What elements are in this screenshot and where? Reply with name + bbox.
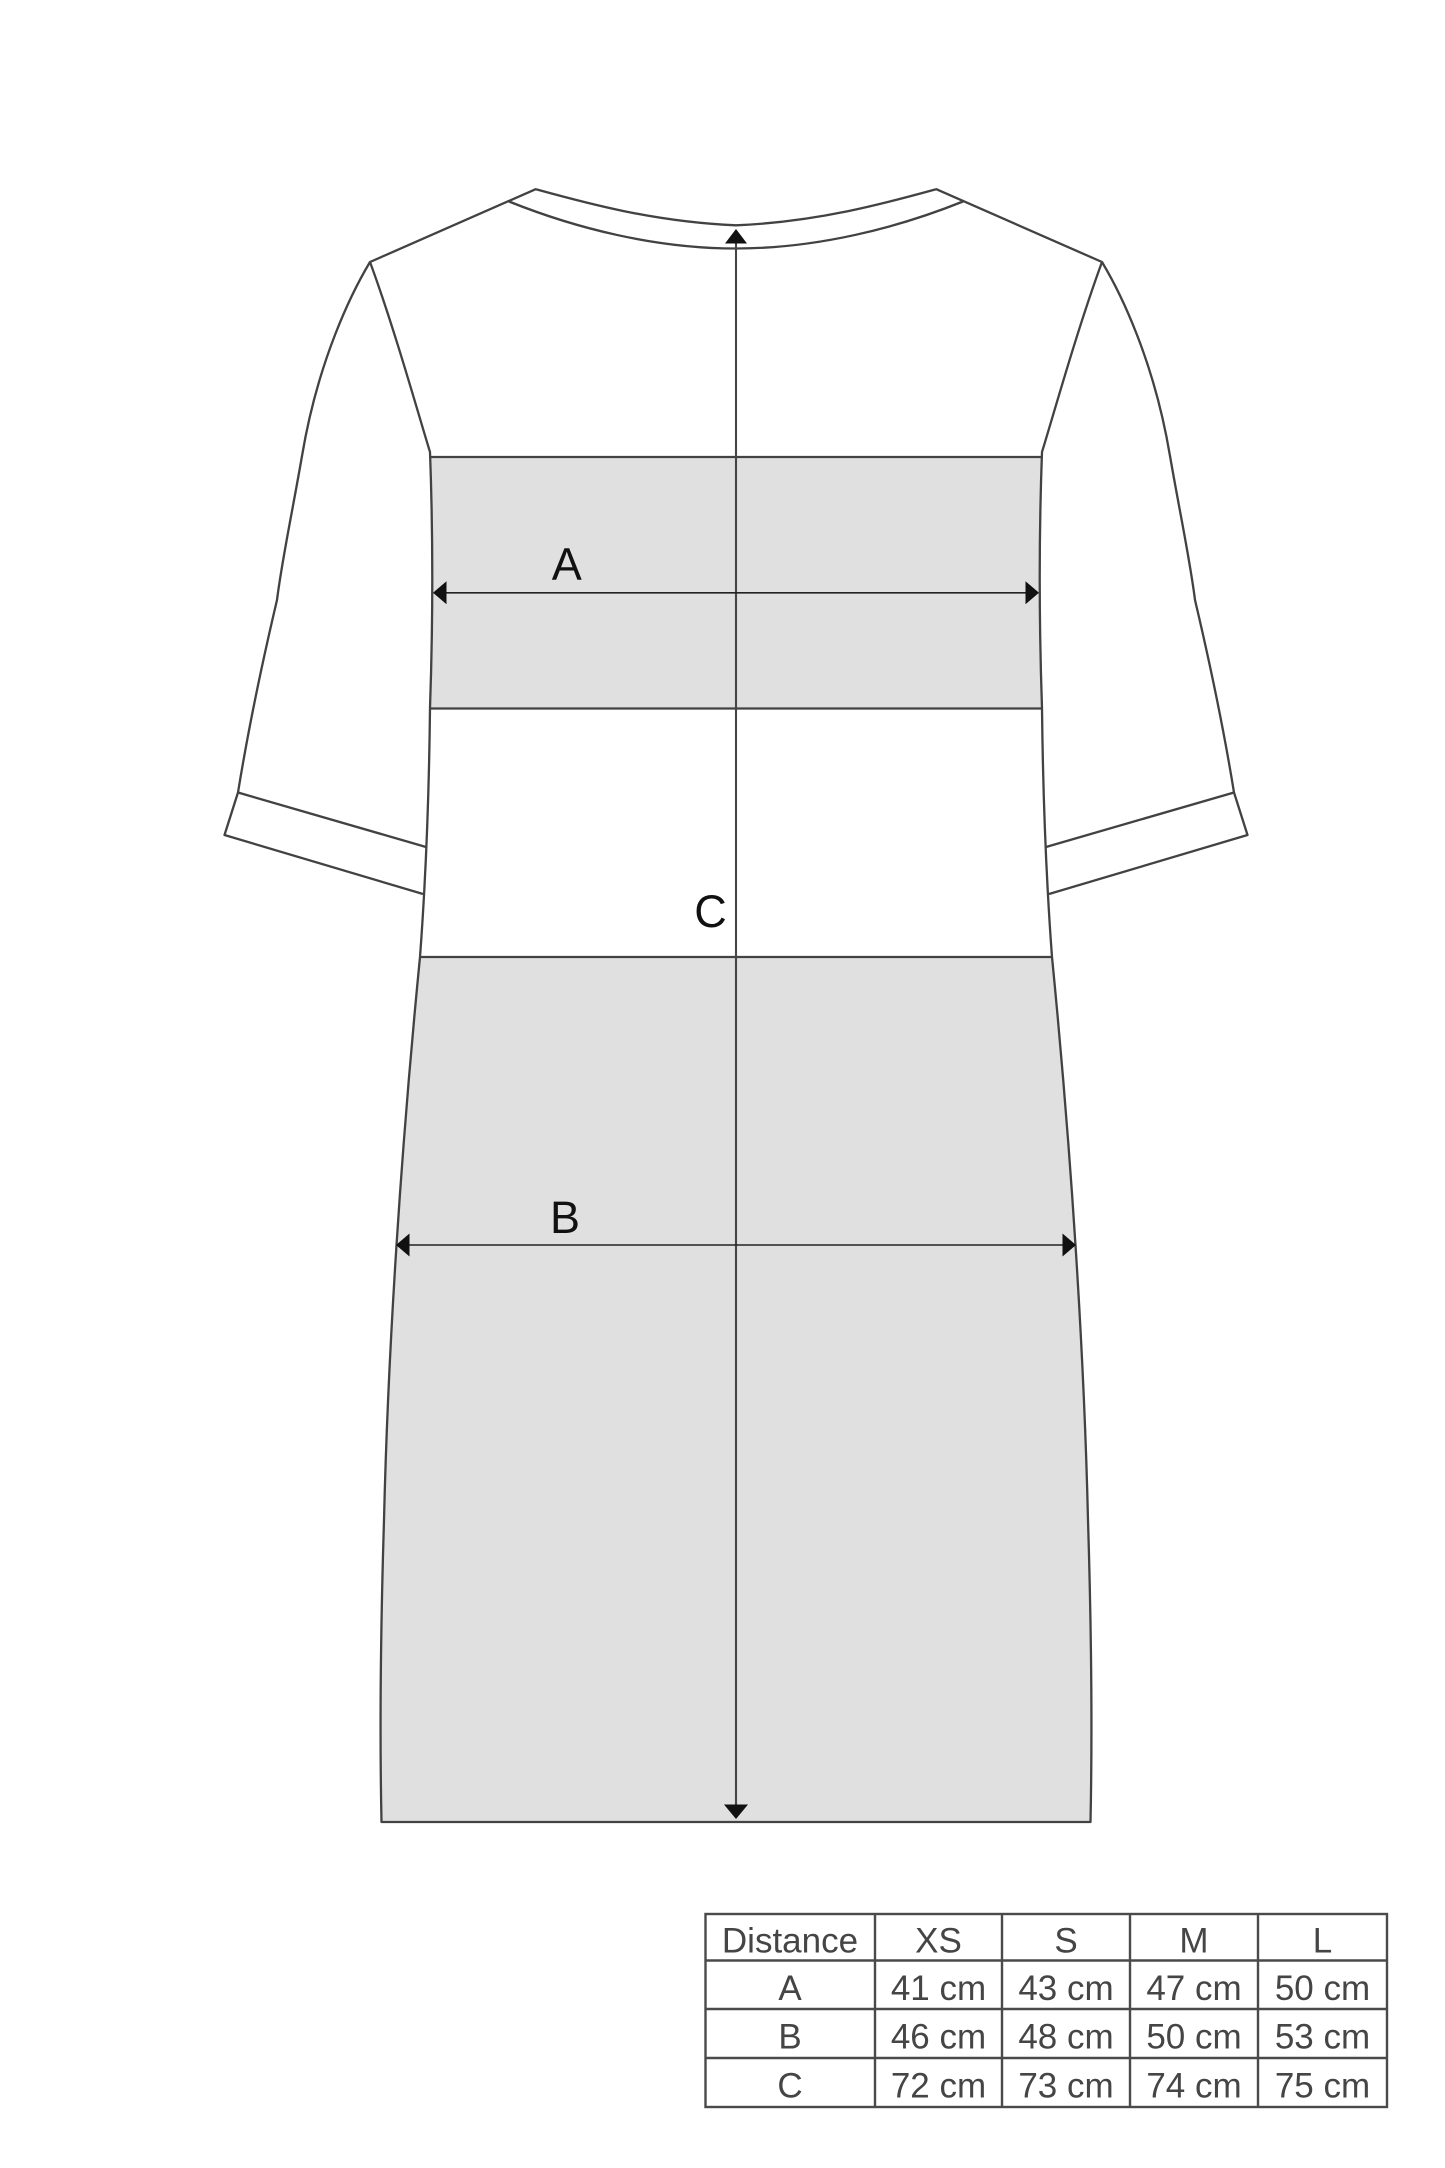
svg-text:47 cm: 47 cm bbox=[1146, 1969, 1241, 2008]
svg-text:L: L bbox=[1313, 1922, 1332, 1961]
svg-text:A: A bbox=[552, 539, 582, 590]
svg-text:53 cm: 53 cm bbox=[1275, 2018, 1370, 2057]
svg-text:74 cm: 74 cm bbox=[1146, 2067, 1241, 2106]
svg-text:46 cm: 46 cm bbox=[891, 2018, 986, 2057]
svg-text:C: C bbox=[694, 886, 727, 937]
svg-text:48 cm: 48 cm bbox=[1018, 2018, 1113, 2057]
svg-text:73 cm: 73 cm bbox=[1018, 2067, 1113, 2106]
svg-text:A: A bbox=[778, 1969, 802, 2008]
svg-text:M: M bbox=[1179, 1922, 1208, 1961]
svg-text:C: C bbox=[777, 2067, 802, 2106]
svg-text:50 cm: 50 cm bbox=[1146, 2018, 1241, 2057]
svg-text:75 cm: 75 cm bbox=[1275, 2067, 1370, 2106]
svg-text:50 cm: 50 cm bbox=[1275, 1969, 1370, 2008]
svg-text:43 cm: 43 cm bbox=[1018, 1969, 1113, 2008]
svg-text:41 cm: 41 cm bbox=[891, 1969, 986, 2008]
svg-text:72 cm: 72 cm bbox=[891, 2067, 986, 2106]
svg-text:B: B bbox=[778, 2018, 801, 2057]
svg-text:Distance: Distance bbox=[722, 1922, 858, 1961]
svg-text:XS: XS bbox=[915, 1922, 962, 1961]
svg-text:S: S bbox=[1054, 1922, 1077, 1961]
svg-text:B: B bbox=[550, 1192, 580, 1243]
